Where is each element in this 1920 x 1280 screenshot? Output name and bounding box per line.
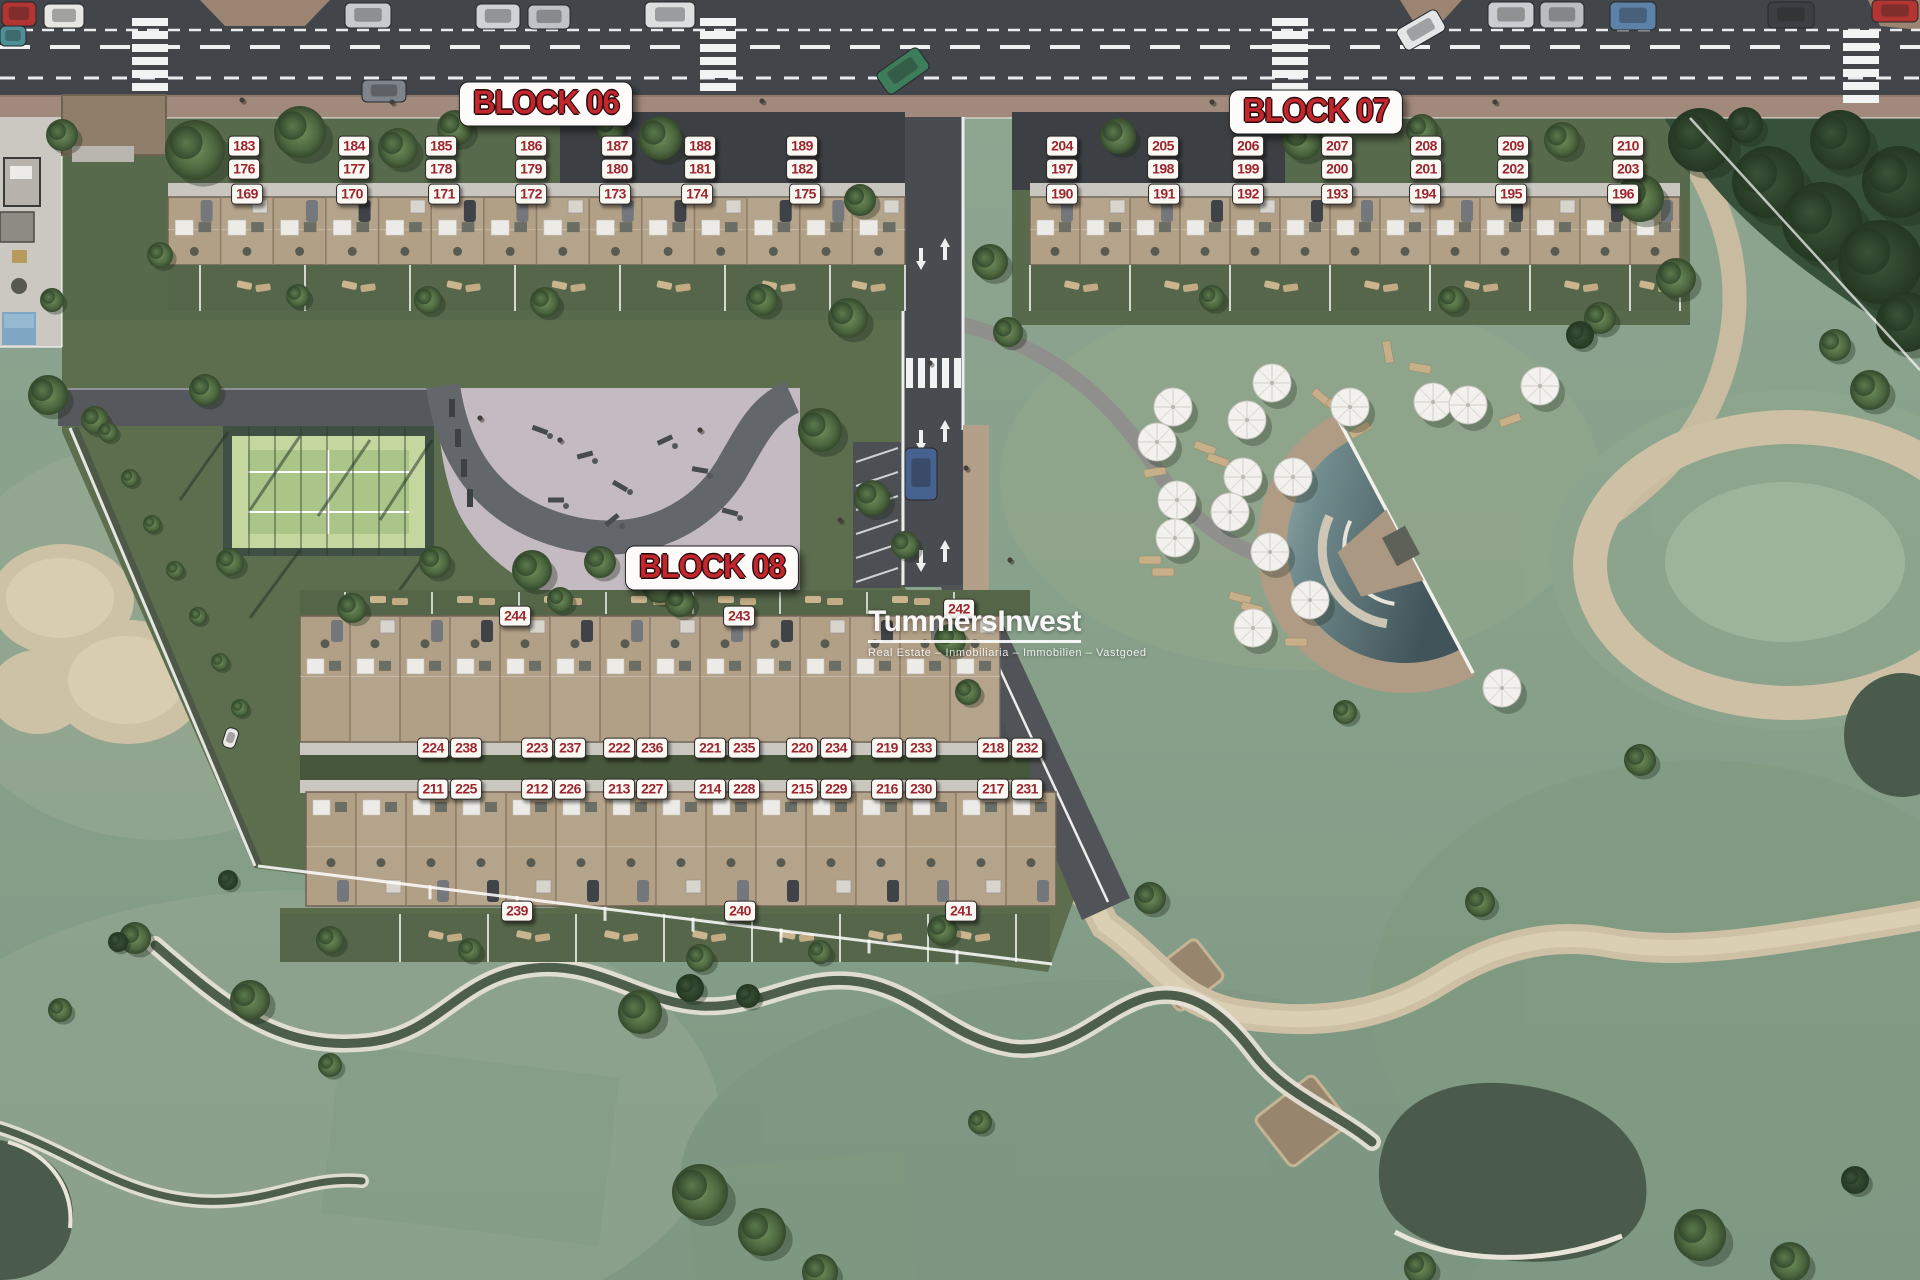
unit-badge-199: 199 (1232, 159, 1264, 180)
site-plan-canvas: BLOCK 0618318418518618718818917617717817… (0, 0, 1920, 1280)
unit-badge-173: 173 (599, 184, 631, 205)
unit-badge-196: 196 (1607, 184, 1639, 205)
unit-badge-244: 244 (499, 606, 531, 627)
unit-badge-211: 211 (417, 779, 448, 800)
unit-badge-221: 221 (694, 738, 726, 759)
unit-badge-179: 179 (515, 159, 547, 180)
unit-badge-233: 233 (905, 738, 937, 759)
unit-badge-203: 203 (1612, 159, 1644, 180)
unit-badge-185: 185 (425, 136, 457, 157)
unit-badge-194: 194 (1409, 184, 1441, 205)
unit-badge-207: 207 (1321, 136, 1353, 157)
unit-badge-217: 217 (977, 779, 1009, 800)
unit-badge-223: 223 (521, 738, 553, 759)
watermark-tagline: Real Estate – Inmobiliaria – Immobilien … (868, 647, 1147, 659)
unit-badge-183: 183 (228, 136, 260, 157)
unit-badge-192: 192 (1232, 184, 1264, 205)
developer-watermark: TummersInvest Real Estate – Inmobiliaria… (868, 605, 1147, 659)
unit-badge-206: 206 (1232, 136, 1264, 157)
unit-badge-182: 182 (786, 159, 818, 180)
unit-badge-172: 172 (515, 184, 547, 205)
unit-badge-230: 230 (905, 779, 937, 800)
unit-badge-201: 201 (1410, 159, 1442, 180)
unit-badge-178: 178 (425, 159, 457, 180)
block-label-06: BLOCK 06 (459, 82, 633, 127)
unit-badge-210: 210 (1612, 136, 1644, 157)
unit-badge-188: 188 (684, 136, 716, 157)
unit-badge-181: 181 (684, 159, 716, 180)
unit-badge-200: 200 (1321, 159, 1353, 180)
unit-badge-215: 215 (786, 779, 818, 800)
unit-badge-175: 175 (789, 184, 821, 205)
unit-badge-202: 202 (1497, 159, 1529, 180)
unit-badge-238: 238 (450, 738, 482, 759)
watermark-name: TummersInvest (868, 605, 1081, 643)
unit-badge-198: 198 (1147, 159, 1179, 180)
unit-badge-224: 224 (417, 738, 449, 759)
unit-badge-209: 209 (1497, 136, 1529, 157)
unit-badge-236: 236 (636, 738, 668, 759)
unit-badge-219: 219 (871, 738, 903, 759)
unit-badge-184: 184 (338, 136, 370, 157)
unit-badge-208: 208 (1410, 136, 1442, 157)
unit-badge-170: 170 (336, 184, 368, 205)
unit-badge-239: 239 (501, 901, 533, 922)
block-label-07: BLOCK 07 (1229, 90, 1403, 135)
unit-badge-226: 226 (554, 779, 586, 800)
unit-badge-218: 218 (977, 738, 1009, 759)
unit-badge-232: 232 (1011, 738, 1043, 759)
block-label-08: BLOCK 08 (625, 546, 799, 591)
unit-badge-225: 225 (450, 779, 482, 800)
unit-badge-212: 212 (521, 779, 553, 800)
unit-badge-195: 195 (1495, 184, 1527, 205)
unit-badge-213: 213 (603, 779, 635, 800)
unit-badge-240: 240 (724, 901, 756, 922)
unit-badge-180: 180 (601, 159, 633, 180)
unit-badge-241: 241 (945, 901, 977, 922)
unit-badge-176: 176 (228, 159, 260, 180)
unit-badge-227: 227 (636, 779, 668, 800)
unit-badge-234: 234 (820, 738, 852, 759)
unit-badge-177: 177 (338, 159, 370, 180)
unit-badge-193: 193 (1321, 184, 1353, 205)
unit-badge-243: 243 (723, 606, 755, 627)
unit-badge-174: 174 (681, 184, 713, 205)
unit-badge-186: 186 (515, 136, 547, 157)
unit-badge-235: 235 (728, 738, 760, 759)
unit-badge-191: 191 (1148, 184, 1180, 205)
unit-badge-214: 214 (694, 779, 726, 800)
unit-badge-222: 222 (603, 738, 635, 759)
unit-badge-228: 228 (728, 779, 760, 800)
unit-badge-197: 197 (1046, 159, 1078, 180)
unit-badge-169: 169 (231, 184, 263, 205)
unit-badge-187: 187 (601, 136, 633, 157)
unit-badge-216: 216 (871, 779, 903, 800)
unit-badge-220: 220 (786, 738, 818, 759)
unit-badge-171: 171 (428, 184, 460, 205)
unit-badge-231: 231 (1011, 779, 1043, 800)
unit-badge-205: 205 (1147, 136, 1179, 157)
unit-badge-190: 190 (1046, 184, 1078, 205)
unit-badge-229: 229 (820, 779, 852, 800)
unit-badge-204: 204 (1046, 136, 1078, 157)
unit-badge-189: 189 (786, 136, 818, 157)
unit-badge-237: 237 (554, 738, 586, 759)
